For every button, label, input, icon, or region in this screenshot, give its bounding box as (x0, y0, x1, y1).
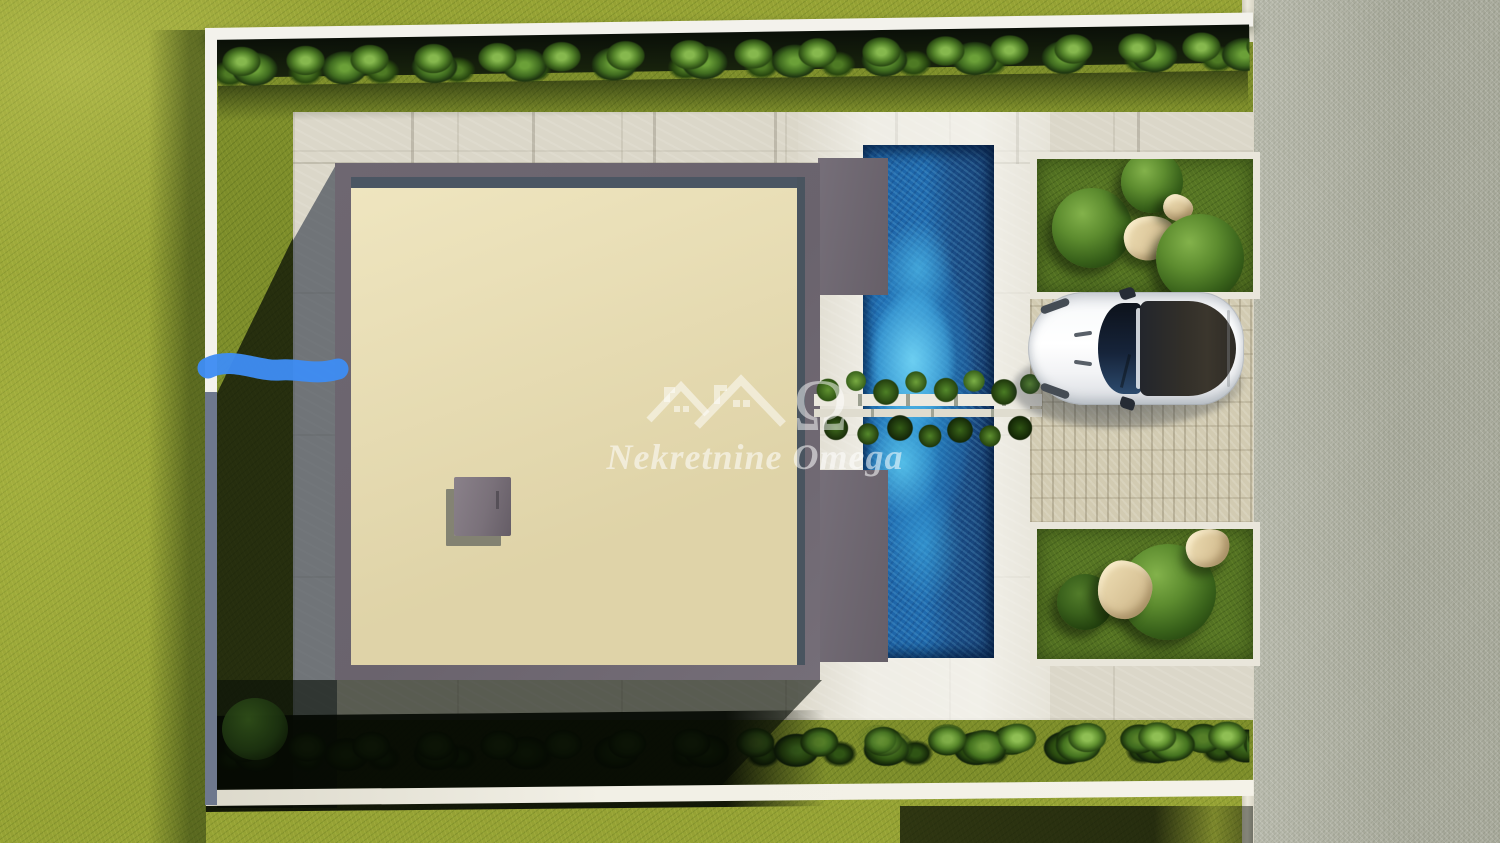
window-icon (683, 406, 689, 412)
hedge-sunlit-section (845, 706, 1248, 780)
top-boundary (205, 10, 1254, 124)
wall-cast-shadow (148, 30, 206, 843)
perimeter-wall-left-shaded (205, 392, 217, 805)
window-icon (674, 406, 680, 412)
watermark-title: Nekretnine Omega (560, 436, 950, 478)
blue-marker-annotation (196, 346, 350, 392)
shaded-corner-bush (222, 698, 288, 760)
window-icon (743, 400, 750, 407)
bush (1156, 214, 1244, 299)
gravel-road (1253, 0, 1500, 843)
house-wing-upper (818, 158, 888, 295)
white-sports-car (1028, 292, 1244, 405)
car-roof-glass (1140, 301, 1236, 396)
bottom-boundary (205, 706, 1254, 812)
bush (1052, 188, 1132, 268)
omega-icon: Ω (793, 368, 848, 438)
car-trunk-seam (1227, 310, 1230, 387)
watermark-logo: Ω (645, 368, 860, 438)
roof-icon (649, 386, 707, 420)
roof-hatch (454, 477, 511, 536)
garden-bed-bottom (1030, 522, 1260, 666)
roof-hatch-handle (496, 491, 499, 509)
aerial-villa-render: Ω Nekretnine Omega (0, 0, 1500, 843)
window-icon (733, 400, 740, 407)
garden-bed-top (1030, 152, 1260, 299)
exterior-shadow-bottom (900, 806, 1253, 843)
marker-stroke (208, 363, 338, 371)
roof-parapet-shadow-top (351, 177, 797, 188)
house-wing-lower (818, 470, 888, 662)
